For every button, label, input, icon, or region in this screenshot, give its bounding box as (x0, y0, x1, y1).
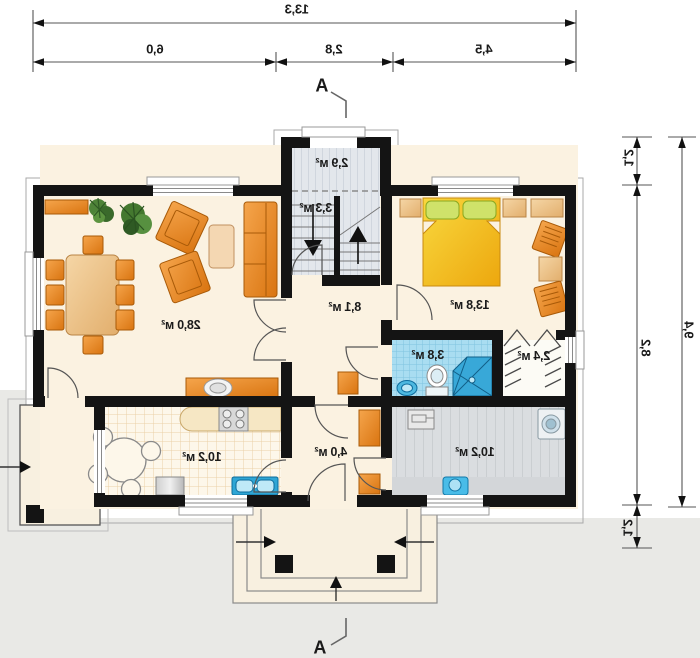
window (432, 177, 519, 196)
stove (219, 407, 248, 431)
boiler (443, 477, 468, 495)
pillow (426, 201, 459, 219)
window (147, 177, 239, 196)
window (179, 495, 253, 515)
dresser (531, 199, 563, 217)
window (25, 252, 44, 336)
sofa (244, 202, 277, 297)
floor-plan-page: 13,3 6,0 2,8 4,5 1,2 8,2 1,2 9,4 A A 28,… (0, 0, 700, 658)
vestibule-floor (292, 148, 380, 191)
coffee-table (209, 225, 234, 268)
washing-machine (538, 409, 565, 439)
side-table (539, 257, 562, 281)
nightstand (400, 199, 421, 217)
terrace-door-opening (45, 396, 85, 407)
kitchen-cabinet (156, 477, 184, 495)
nightstand (503, 199, 526, 217)
sideboard (45, 200, 88, 214)
entrance-porch (233, 507, 437, 603)
dresser-with-bowl (186, 378, 278, 398)
entrance-door-opening (302, 127, 365, 148)
dining-table (66, 255, 119, 335)
floor-plan-drawing (0, 0, 700, 658)
pillow (463, 201, 496, 219)
shelf (408, 410, 434, 429)
double-bed (423, 198, 500, 286)
window (94, 430, 105, 493)
porch-post (275, 555, 293, 573)
hall-door-opening (310, 495, 357, 507)
window (421, 495, 489, 515)
toilet (426, 365, 448, 396)
porch-post (377, 555, 395, 573)
